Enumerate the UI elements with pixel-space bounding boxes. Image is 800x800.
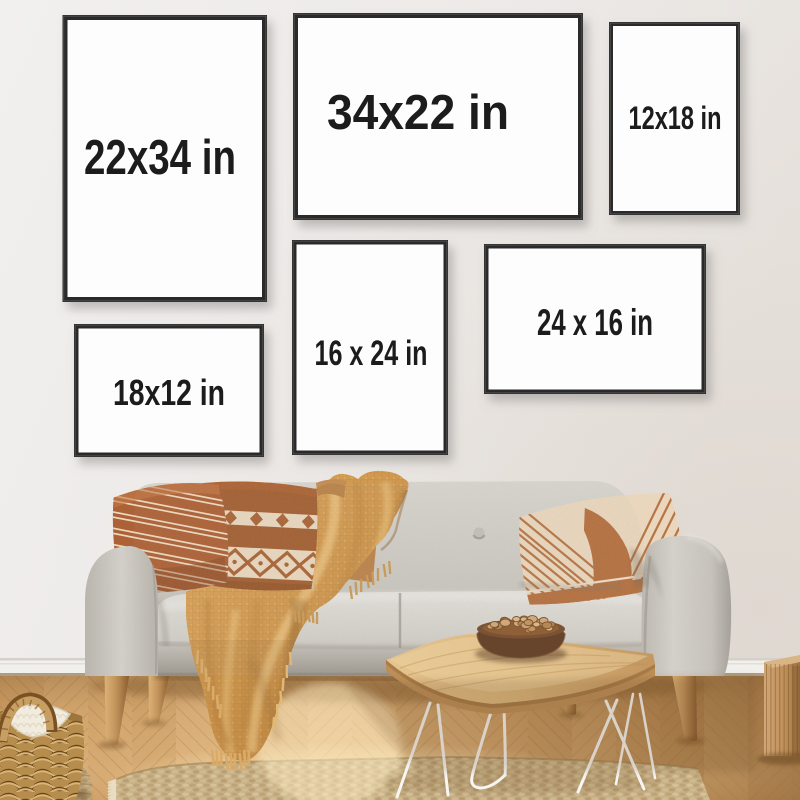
svg-text:18x12 in: 18x12 in	[113, 372, 225, 413]
svg-text:24 x 16 in: 24 x 16 in	[537, 302, 653, 343]
svg-text:22x34 in: 22x34 in	[84, 131, 236, 185]
svg-text:12x18 in: 12x18 in	[629, 100, 722, 136]
svg-text:16 x 24 in: 16 x 24 in	[315, 334, 428, 373]
svg-text:34x22 in: 34x22 in	[327, 86, 509, 140]
